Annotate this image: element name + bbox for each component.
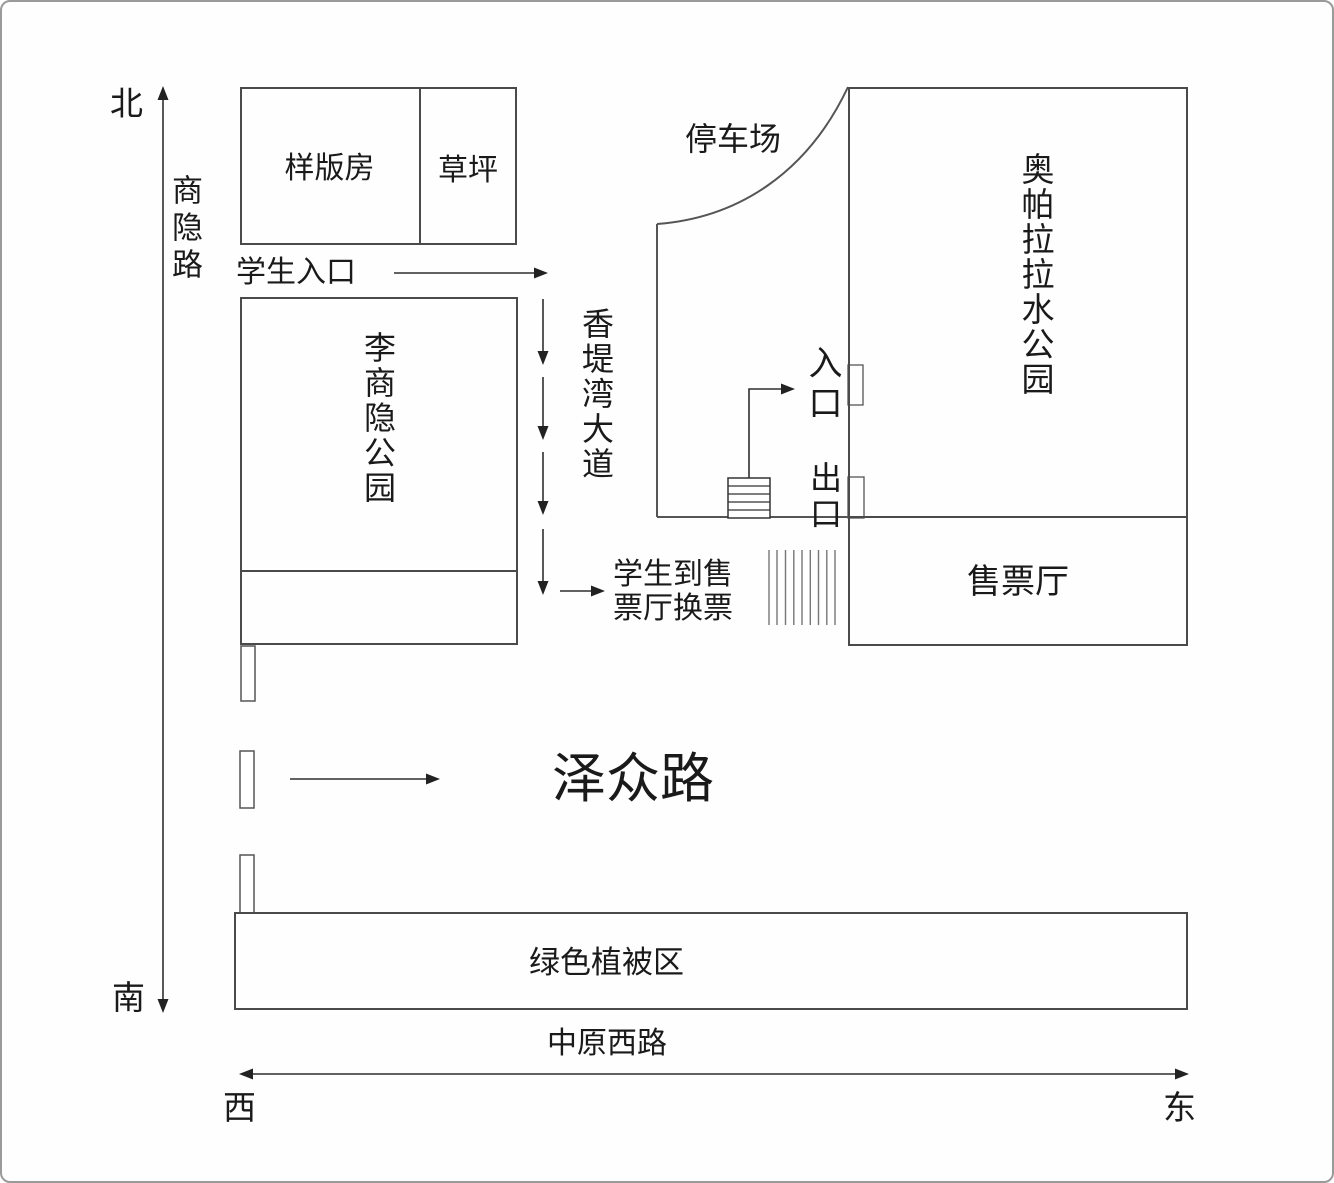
entrance-pointer-arrow (749, 384, 795, 480)
label-xiangdiwan-avenue: 香堤湾大道 (580, 307, 612, 482)
zezhong-road-arrow (290, 774, 440, 785)
label-zhongyuan-west-road: 中原西路 (547, 1028, 667, 1060)
label-east: 东 (1163, 1090, 1196, 1126)
label-north: 北 (110, 86, 143, 122)
schematic-map: 北 南 西 东 商隐路 香堤湾大道 泽众路 中原西路 样版房 草坪 李商隐公园 … (0, 0, 1334, 1183)
east-west-arrow (239, 1069, 1189, 1080)
student-entrance-arrow (394, 268, 548, 279)
label-zezhong-road: 泽众路 (552, 750, 714, 808)
park-south-strip-box (240, 570, 518, 645)
exchange-pointer-arrow (560, 586, 605, 597)
gate-pillars (240, 646, 255, 913)
label-water-park: 奥帕拉拉水公园 (1019, 152, 1052, 397)
ticket-booth-steps (728, 478, 770, 518)
label-ticket-hall: 售票厅 (848, 564, 1188, 601)
label-exit: 出口 (808, 461, 840, 533)
label-exchange-tickets: 学生到售 票厅换票 (613, 558, 733, 626)
pillar-1 (241, 646, 255, 701)
label-lawn: 草坪 (421, 155, 515, 187)
label-shangyin-road: 商隐路 (169, 174, 200, 285)
label-student-entrance: 学生入口 (236, 257, 356, 289)
green-vegetation-box (234, 912, 1188, 1010)
label-green-vegetation-area: 绿色植被区 (529, 946, 684, 979)
label-li-shangyin-park: 李商隐公园 (362, 331, 394, 506)
label-parking-lot: 停车场 (685, 122, 781, 157)
crosswalk-stripes (769, 550, 835, 625)
label-south: 南 (112, 980, 145, 1016)
pillar-2 (240, 751, 254, 808)
pillar-3 (240, 855, 254, 913)
label-sample-room: 样版房 (242, 153, 417, 185)
xiangdiwan-flow-arrows (538, 299, 549, 595)
label-entrance: 入口 (805, 345, 839, 425)
label-west: 西 (223, 1090, 256, 1126)
